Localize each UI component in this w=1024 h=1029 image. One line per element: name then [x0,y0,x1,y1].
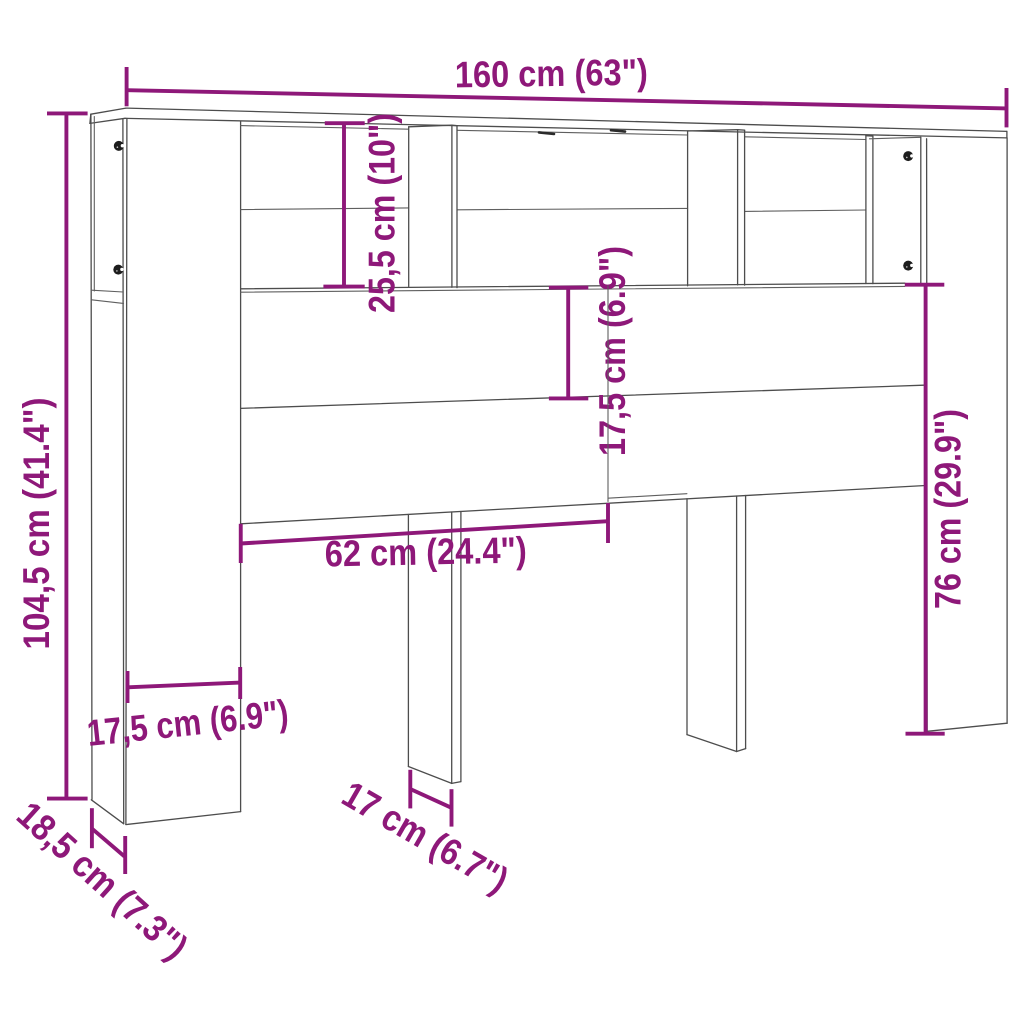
svg-text:62 cm (24.4"): 62 cm (24.4") [324,530,527,575]
svg-text:17,5 cm (6.9"): 17,5 cm (6.9") [592,246,633,456]
svg-text:17 cm (6.7"): 17 cm (6.7") [335,773,515,901]
svg-text:104,5 cm (41.4"): 104,5 cm (41.4") [16,398,57,650]
svg-text:17,5 cm (6.9"): 17,5 cm (6.9") [85,692,290,754]
svg-text:160 cm (63"): 160 cm (63") [455,52,649,96]
svg-text:76 cm (29.9"): 76 cm (29.9") [928,409,969,609]
svg-text:25,5 cm (10"): 25,5 cm (10") [362,113,403,313]
